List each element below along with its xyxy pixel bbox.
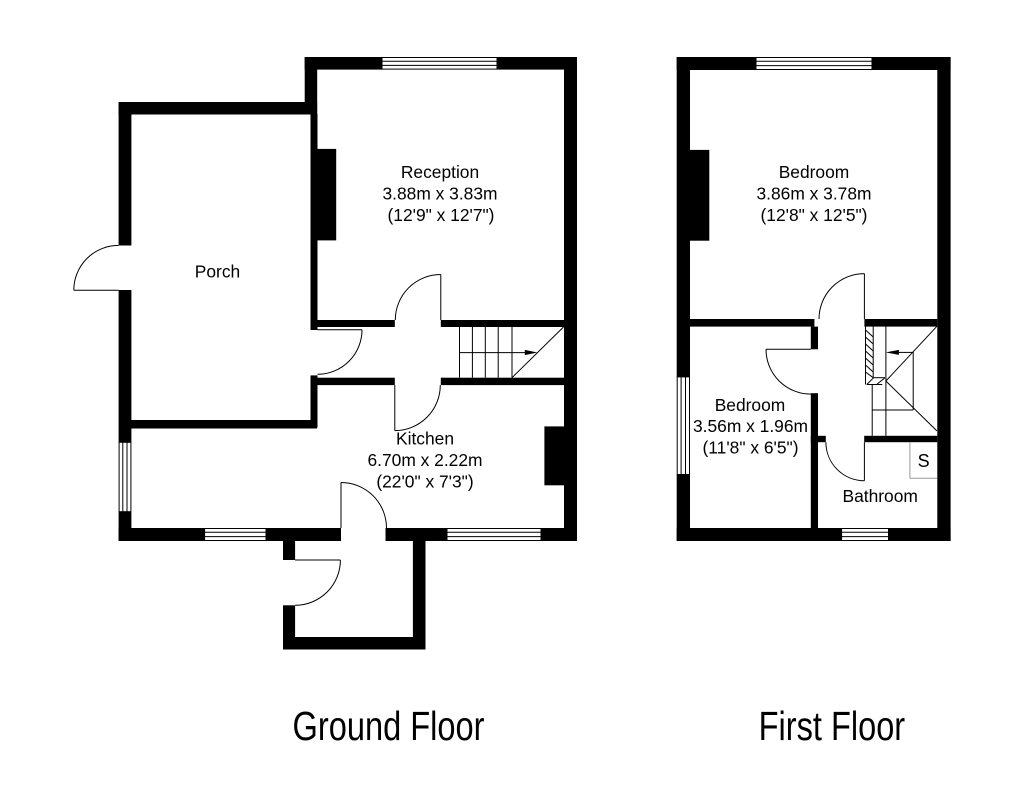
svg-text:(12'9" x 12'7"): (12'9" x 12'7"): [388, 205, 495, 225]
svg-text:Ground Floor: Ground Floor: [293, 703, 485, 749]
svg-text:S: S: [918, 451, 930, 471]
svg-text:Bedroom: Bedroom: [715, 395, 786, 415]
svg-text:3.86m x 3.78m: 3.86m x 3.78m: [756, 184, 871, 204]
svg-text:Porch: Porch: [195, 262, 240, 282]
svg-text:Bathroom: Bathroom: [842, 486, 917, 506]
svg-text:(12'8" x 12'5"): (12'8" x 12'5"): [761, 205, 868, 225]
svg-text:First Floor: First Floor: [759, 703, 906, 749]
svg-text:Reception: Reception: [401, 162, 479, 182]
svg-text:3.88m x 3.83m: 3.88m x 3.83m: [382, 184, 497, 204]
svg-text:Bedroom: Bedroom: [779, 162, 850, 182]
svg-text:(22'0" x 7'3"): (22'0" x 7'3"): [376, 472, 473, 492]
svg-text:Kitchen: Kitchen: [396, 429, 454, 449]
svg-text:3.56m x 1.96m: 3.56m x 1.96m: [693, 416, 808, 436]
svg-text:6.70m x 2.22m: 6.70m x 2.22m: [367, 450, 482, 470]
svg-text:(11'8" x 6'5"): (11'8" x 6'5"): [703, 437, 799, 457]
